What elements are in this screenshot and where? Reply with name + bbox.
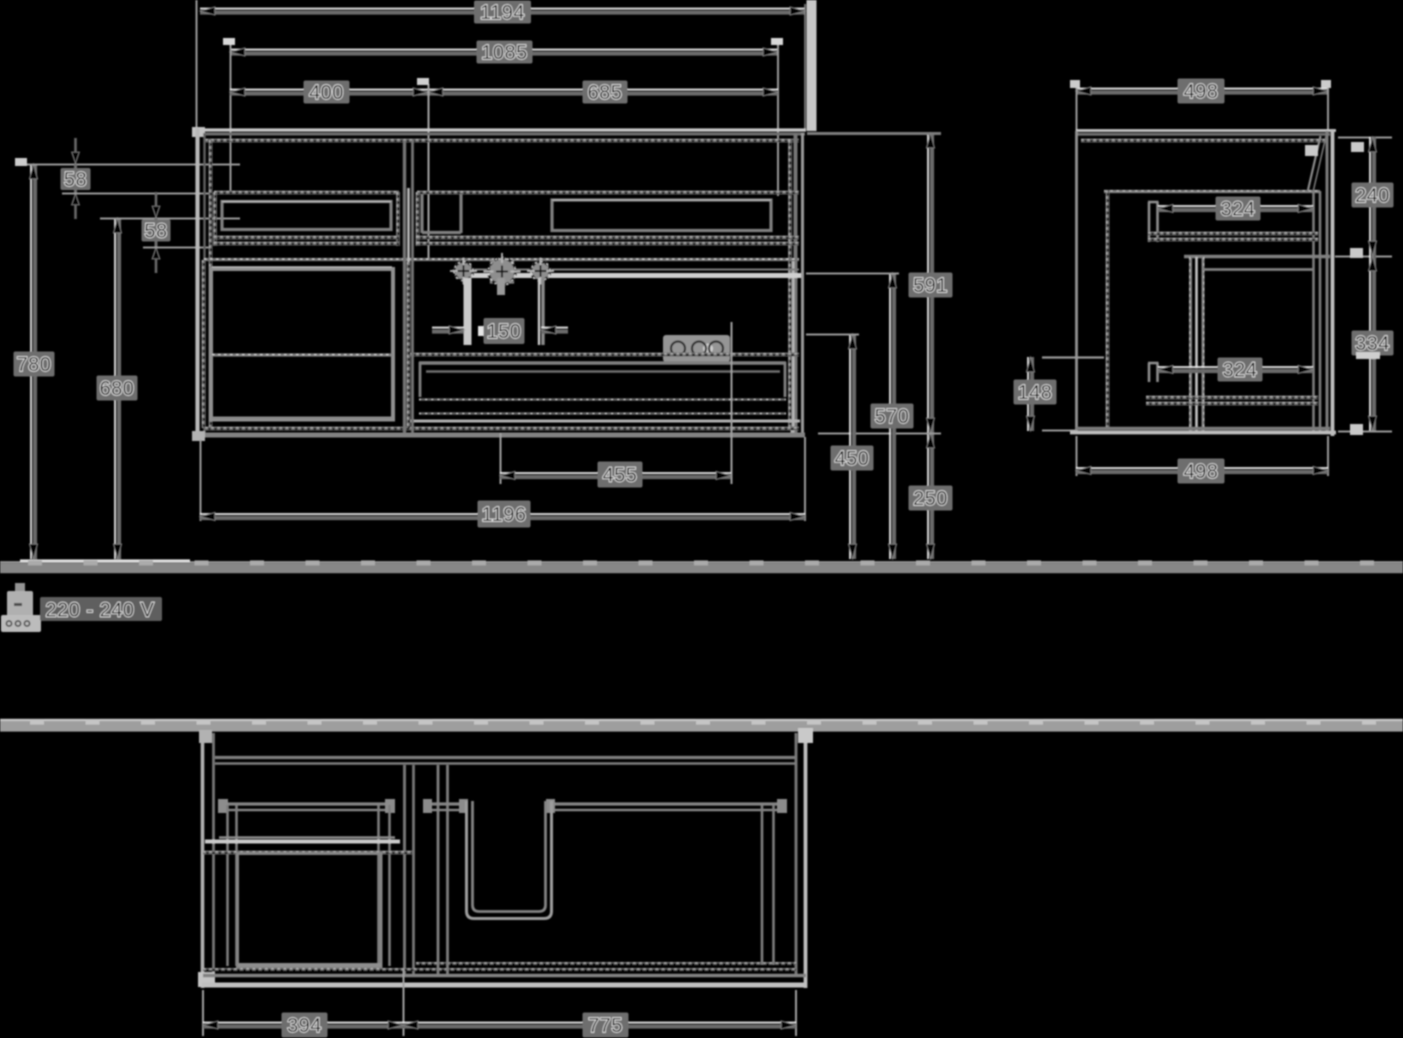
svg-text:450: 450 xyxy=(835,448,870,470)
svg-text:498: 498 xyxy=(1184,81,1219,103)
svg-text:455: 455 xyxy=(603,465,638,487)
svg-text:591: 591 xyxy=(913,275,948,297)
svg-text:400: 400 xyxy=(309,82,344,104)
svg-text:58: 58 xyxy=(64,169,87,191)
svg-text:324: 324 xyxy=(1223,360,1258,382)
svg-text:250: 250 xyxy=(913,488,948,510)
svg-text:150: 150 xyxy=(487,321,522,343)
svg-text:780: 780 xyxy=(17,354,52,376)
svg-text:775: 775 xyxy=(588,1015,623,1037)
svg-text:1085: 1085 xyxy=(481,42,528,64)
svg-text:680: 680 xyxy=(100,378,135,400)
svg-text:220 - 240 V: 220 - 240 V xyxy=(46,600,155,622)
svg-text:1194: 1194 xyxy=(480,2,525,24)
svg-text:498: 498 xyxy=(1184,461,1219,483)
svg-text:58: 58 xyxy=(144,221,167,243)
svg-text:685: 685 xyxy=(588,82,623,104)
svg-text:324: 324 xyxy=(1221,199,1256,221)
svg-text:394: 394 xyxy=(287,1015,322,1037)
svg-text:334: 334 xyxy=(1355,333,1390,355)
svg-text:148: 148 xyxy=(1018,382,1053,404)
svg-text:240: 240 xyxy=(1355,185,1390,207)
svg-text:570: 570 xyxy=(875,406,910,428)
svg-text:1196: 1196 xyxy=(481,504,526,526)
